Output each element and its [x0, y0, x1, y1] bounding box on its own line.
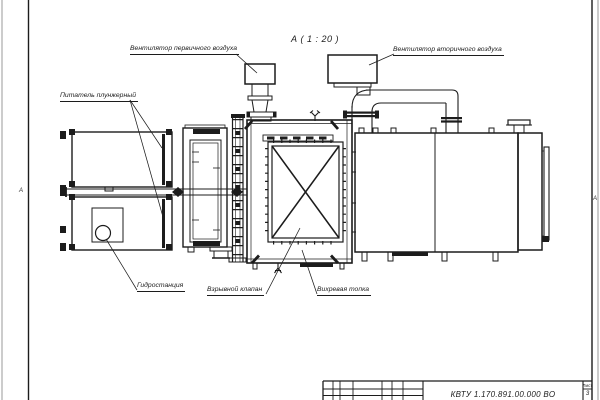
- primary-fan-drawing: [245, 64, 276, 121]
- leader-lines: [106, 54, 394, 294]
- bolted-flange-column: [229, 114, 246, 262]
- feeder-tower-drawing: [183, 125, 232, 258]
- title-block-sheet-number: 3: [582, 391, 593, 397]
- zone-marker-right: А: [593, 196, 597, 202]
- plunger-feeder-drawing: [60, 129, 247, 251]
- tank-top-flange: [506, 120, 532, 133]
- callout-secondary-fan: Вентилятор вторичного воздуха: [393, 46, 504, 56]
- assembly-drawing: [0, 0, 600, 400]
- callout-hydro-station: Гидростанция: [137, 282, 185, 292]
- zone-marker-left: А: [19, 188, 23, 194]
- explosion-valve-panel: [267, 141, 344, 243]
- secondary-fan-drawing: [328, 55, 462, 133]
- tank-drawing: [355, 120, 549, 261]
- vortex-furnace-drawing: [245, 111, 356, 274]
- title-block-designation: КВТУ 1.170.891.00.000 ВО: [423, 390, 583, 399]
- callout-primary-fan: Вентилятор первичного воздуха: [130, 45, 239, 55]
- drawing-sheet: А ( 1 : 20 ) А А Вентилятор первичного в…: [0, 0, 600, 400]
- hydro-station-port: [96, 226, 111, 241]
- callout-vortex-furnace: Вихревая топка: [317, 286, 371, 296]
- tank-feet: [362, 252, 498, 261]
- title-block-sheet-label: Лист: [582, 383, 593, 388]
- duct-flanges: [343, 111, 462, 123]
- callout-explosion-valve: Взрывной клапан: [207, 286, 264, 296]
- callout-feeder: Питатель плунжерный: [60, 92, 138, 102]
- view-title: А ( 1 : 20 ): [291, 34, 339, 44]
